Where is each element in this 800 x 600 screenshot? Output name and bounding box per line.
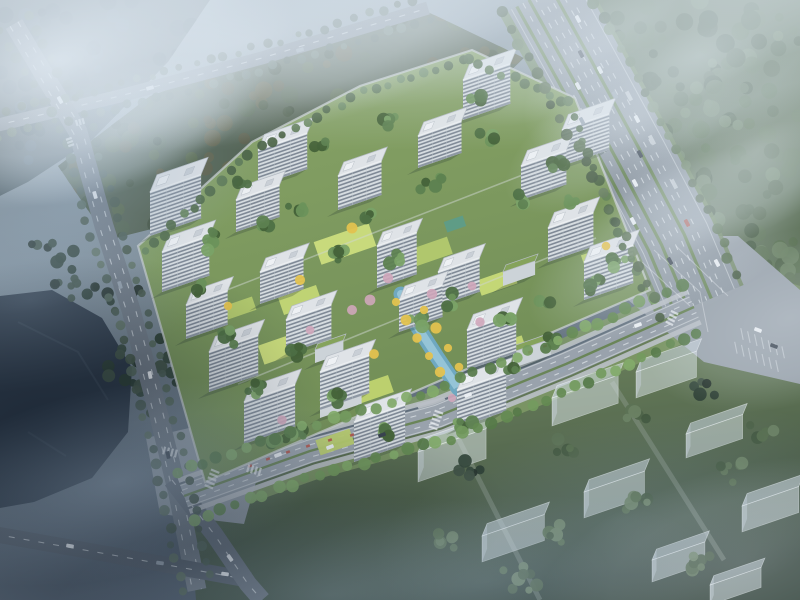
ginkgo-tree [430,322,441,333]
ginkgo-tree [455,363,464,372]
ginkgo-tree [347,223,358,234]
ginkgo-tree [369,349,379,359]
blossom-tree [306,326,315,335]
blossom-tree [468,282,477,291]
ginkgo-tree [295,275,305,285]
blossom-tree [448,394,456,402]
ginkgo-tree [412,333,421,342]
aerial-render-view [0,0,800,600]
blossom-tree [427,289,438,300]
ginkgo-tree [401,315,412,326]
top-haze [0,0,800,150]
ginkgo-tree [392,298,400,306]
ginkgo-tree [425,352,433,360]
ginkgo-tree [435,367,445,377]
blossom-tree [365,295,376,306]
ginkgo-tree [420,306,428,314]
blossom-tree [347,305,357,315]
blossom-tree [383,273,393,283]
ginkgo-tree [444,344,452,352]
blossom-tree [475,317,484,326]
aerial-scene [0,0,800,600]
